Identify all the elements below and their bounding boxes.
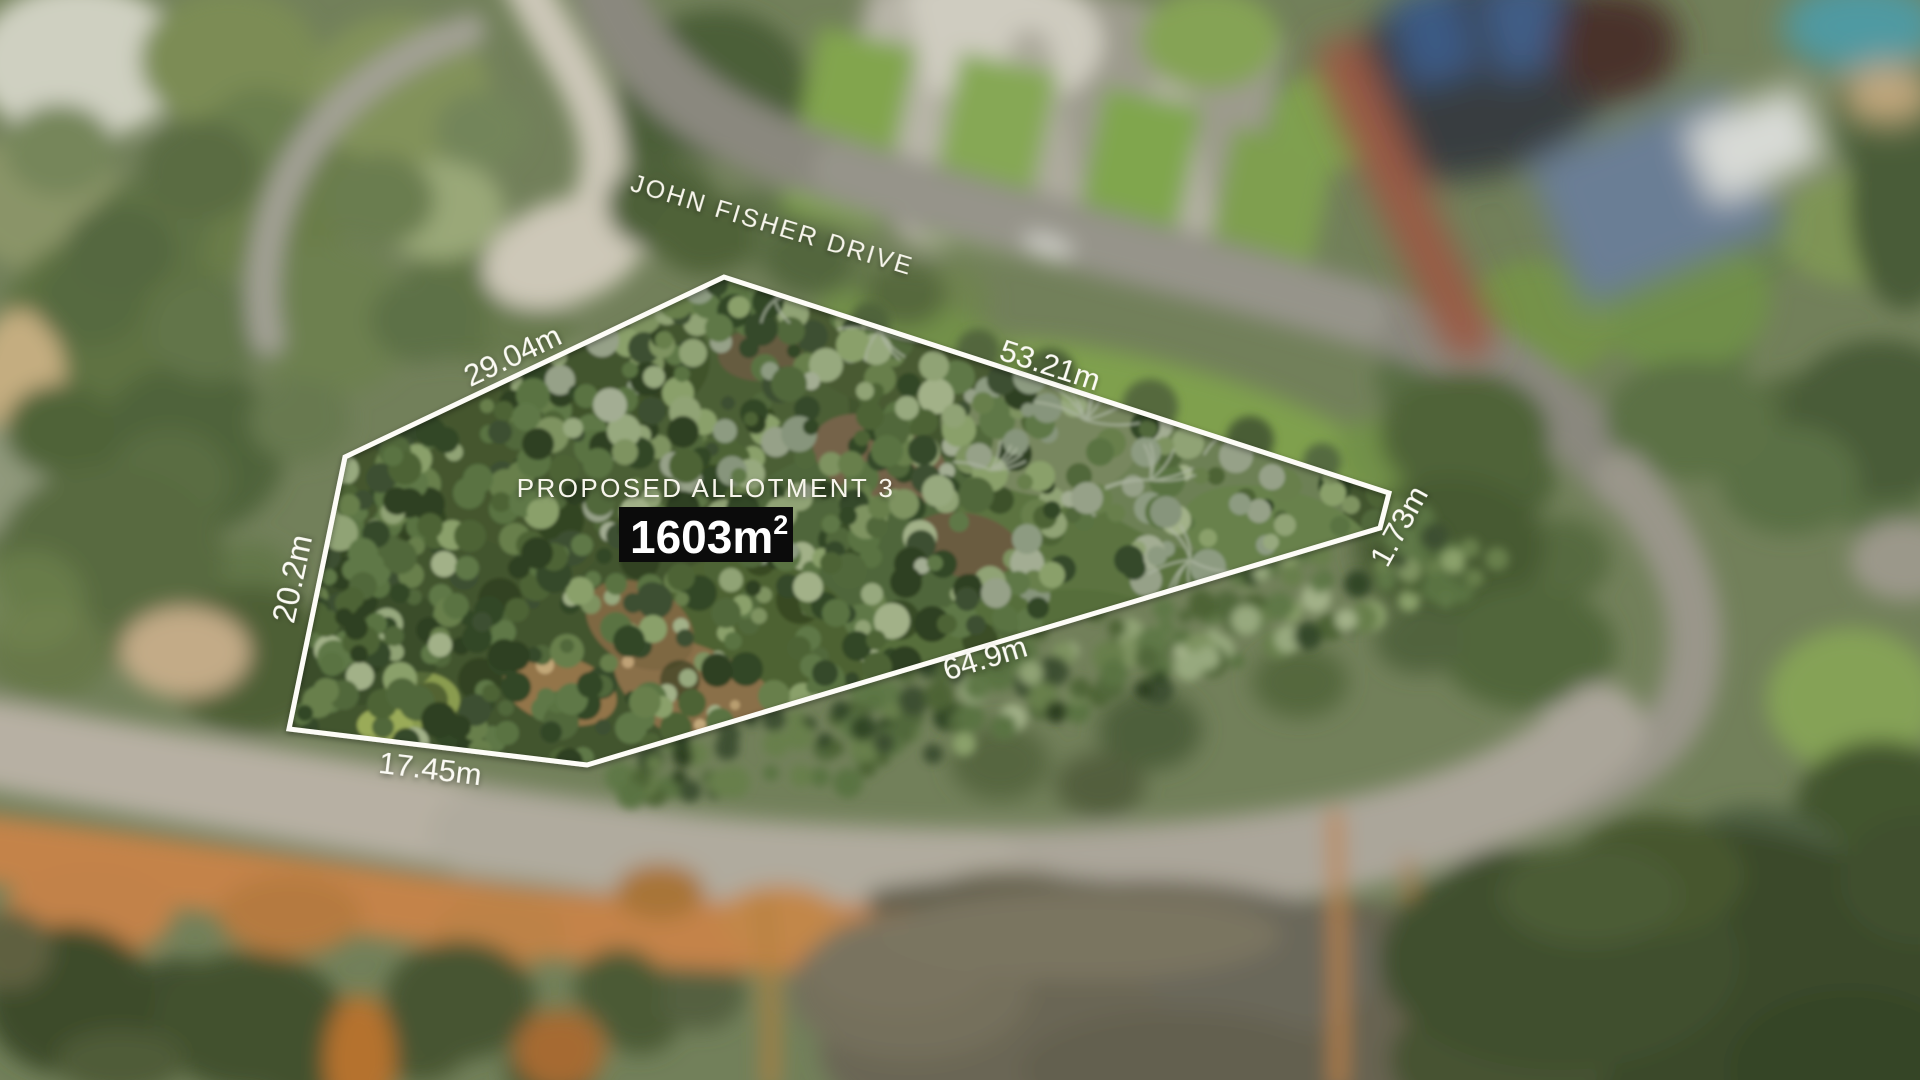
svg-text:PROPOSED ALLOTMENT 3: PROPOSED ALLOTMENT 3 xyxy=(517,473,895,503)
svg-text:1603m2: 1603m2 xyxy=(630,510,788,563)
